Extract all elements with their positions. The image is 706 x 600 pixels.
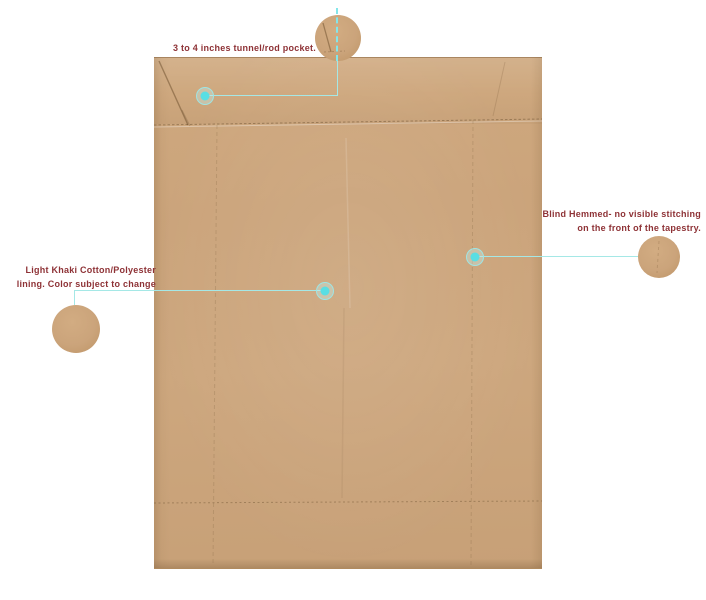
fabric-seam-lines (154, 58, 542, 569)
label-blind-hem-line2: on the front of the tapestry. (542, 221, 701, 235)
label-rod-pocket: 3 to 4 inches tunnel/rod pocket. (0, 41, 316, 55)
marker-blind-hem (466, 248, 484, 266)
marker-rod-pocket (196, 87, 214, 105)
label-blind-hem-line1: Blind Hemmed- no visible stitching (542, 207, 701, 221)
label-lining-line1: Light Khaki Cotton/Polyester (6, 263, 156, 277)
detail-swatch-blind-hem (638, 236, 680, 278)
leader-line-rod-pocket-dashed (336, 8, 338, 61)
rod-pocket-seam-detail (315, 15, 361, 61)
leader-line-lining-vertical (74, 290, 75, 305)
marker-lining (316, 282, 334, 300)
annotated-product-image: 3 to 4 inches tunnel/rod pocket. Blind H… (0, 0, 706, 600)
leader-line-rod-pocket-vertical (337, 61, 338, 96)
leader-line-rod-pocket-horizontal (205, 95, 337, 96)
detail-swatch-lining (52, 305, 100, 353)
label-lining: Light Khaki Cotton/Polyester lining. Col… (6, 263, 156, 291)
label-lining-line2: lining. Color subject to change (6, 277, 156, 291)
detail-swatch-rod-pocket (315, 15, 361, 61)
label-rod-pocket-text: 3 to 4 inches tunnel/rod pocket. (173, 43, 316, 53)
tapestry-back-photo (154, 57, 542, 569)
blind-hem-seam-detail (638, 236, 680, 278)
label-blind-hem: Blind Hemmed- no visible stitching on th… (542, 207, 701, 235)
leader-line-blind-hem-horizontal (475, 256, 638, 257)
